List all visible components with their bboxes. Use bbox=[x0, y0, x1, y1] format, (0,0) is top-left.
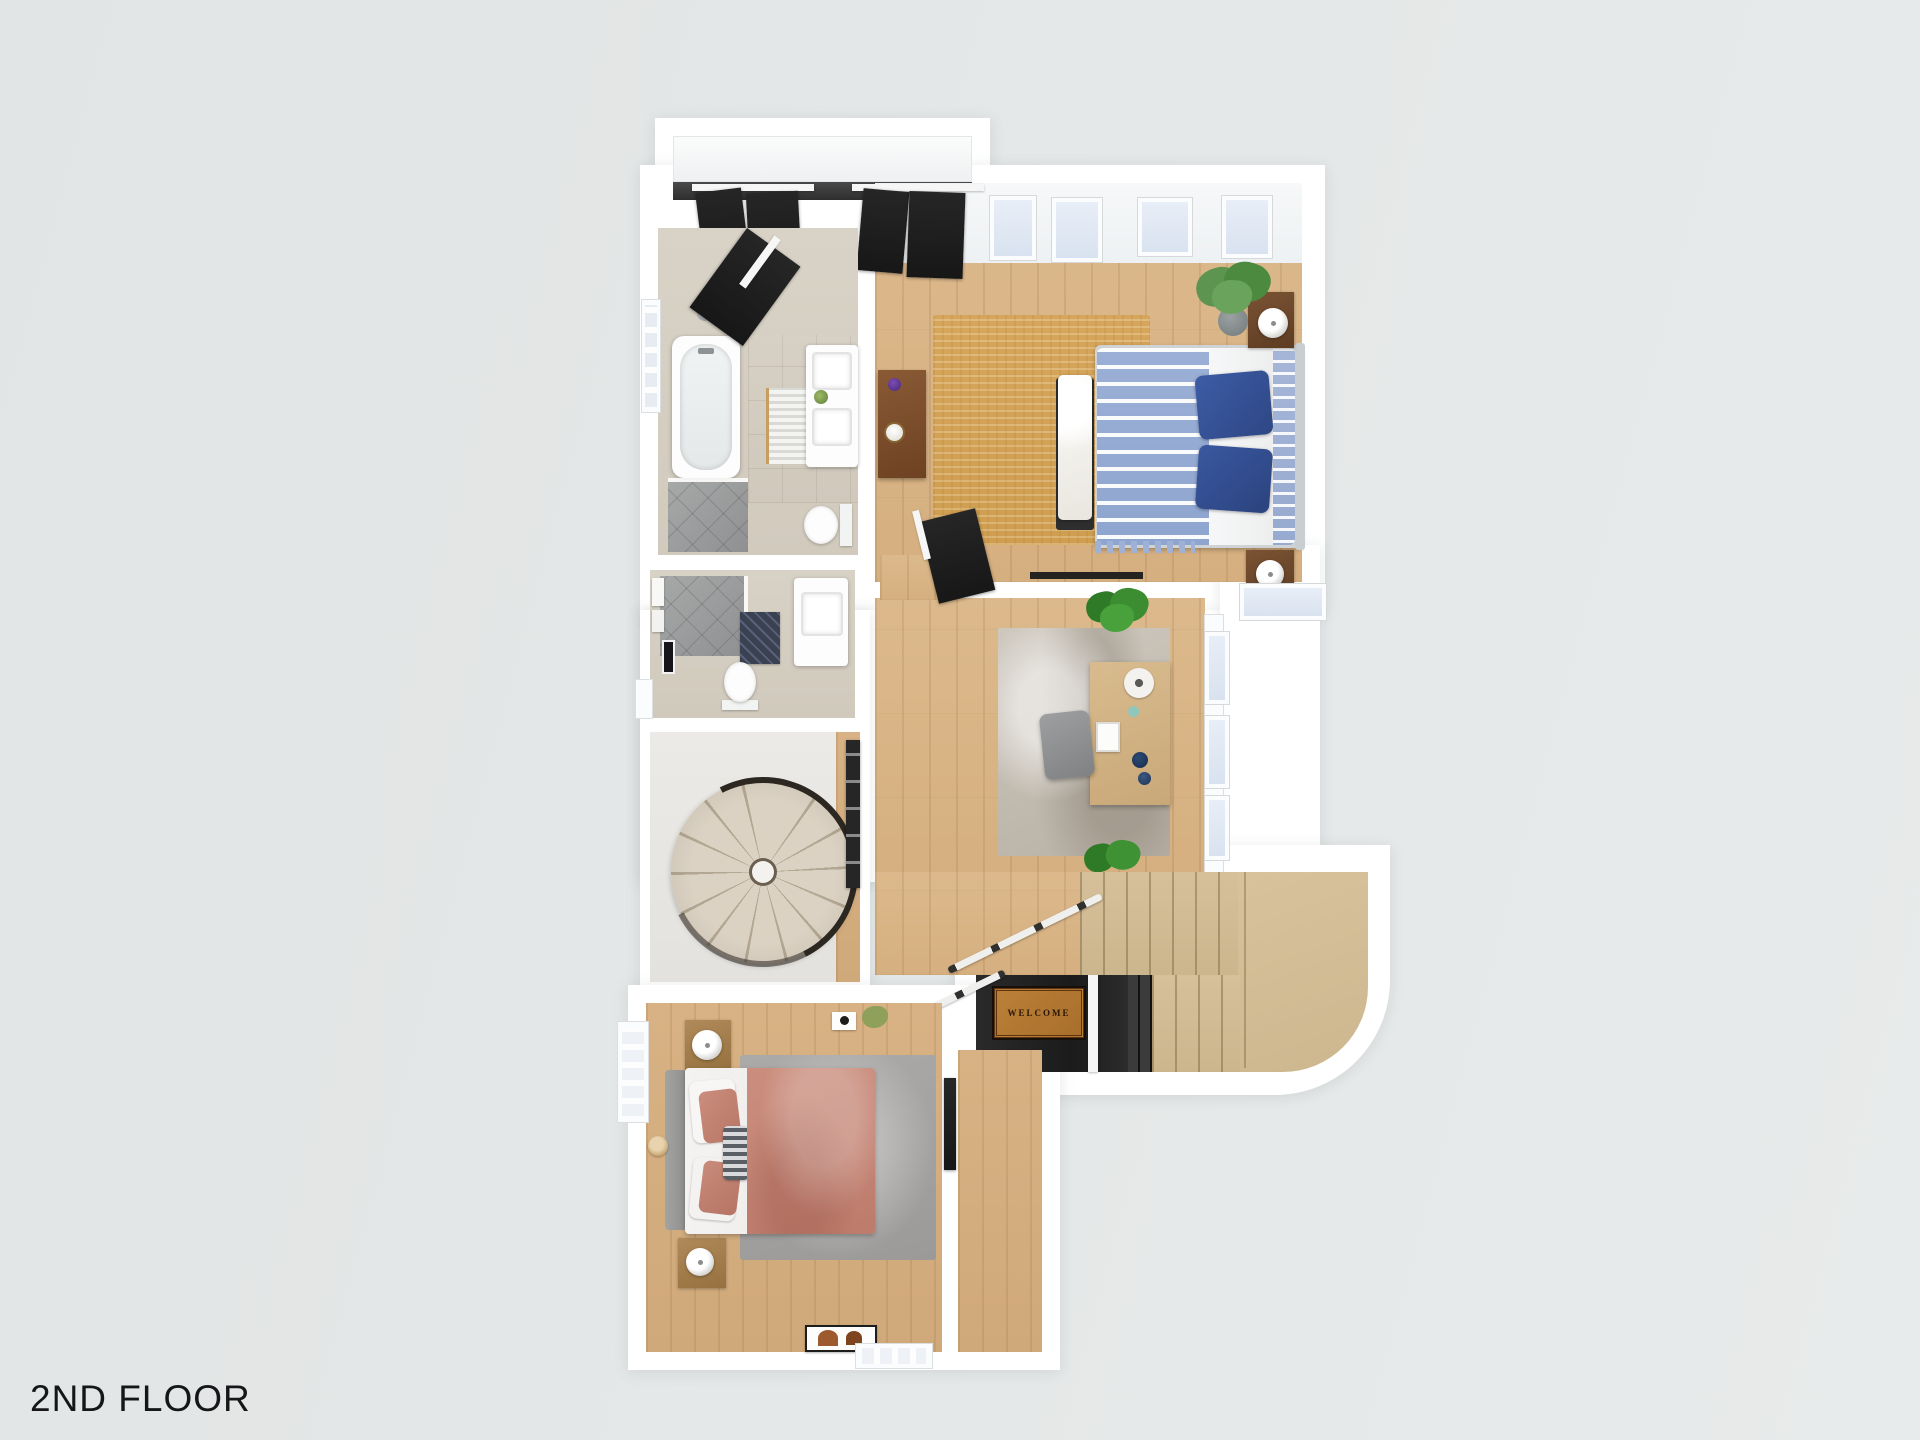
skylight-icon bbox=[1222, 196, 1272, 258]
staircase-lower-flight bbox=[1152, 975, 1240, 1072]
closet-bump-panel bbox=[673, 136, 972, 182]
bath-mat-dark bbox=[740, 612, 780, 664]
welcome-mat-text: WELCOME bbox=[1007, 1008, 1070, 1018]
desk-vase-navy bbox=[1132, 752, 1148, 768]
table-lamp-icon bbox=[686, 1248, 714, 1276]
window-icon bbox=[1240, 584, 1326, 620]
welcome-mat: WELCOME bbox=[994, 988, 1084, 1038]
potted-plant-icon bbox=[862, 1006, 892, 1032]
round-basket-icon bbox=[648, 1136, 668, 1156]
desk-art-swirl bbox=[840, 1016, 849, 1025]
artwork-detail bbox=[846, 1331, 862, 1345]
office-chair-icon bbox=[1039, 710, 1096, 781]
toilet-icon bbox=[724, 662, 756, 702]
stair-divider-wall bbox=[1088, 975, 1098, 1072]
bed1-pillow-navy bbox=[1195, 444, 1273, 513]
desk-cup bbox=[1128, 706, 1139, 717]
stair-rail-icon bbox=[846, 740, 860, 888]
bed2-headboard bbox=[665, 1070, 687, 1230]
desk-fan-icon bbox=[1124, 668, 1154, 698]
dresser-icon bbox=[878, 370, 926, 478]
bed2-duvet bbox=[747, 1068, 875, 1234]
artwork-detail bbox=[818, 1330, 838, 1346]
floor-title: 2ND FLOOR bbox=[30, 1378, 251, 1420]
plant-leaves bbox=[1211, 278, 1254, 315]
door-icon bbox=[944, 1078, 956, 1170]
bed2-accent-pillow bbox=[723, 1126, 749, 1180]
bathtub-inner bbox=[680, 344, 732, 470]
spiral-stair-post bbox=[752, 861, 774, 883]
double-bed-blue bbox=[1095, 345, 1302, 548]
potted-plant-icon bbox=[1086, 588, 1150, 640]
potted-plant-icon bbox=[1190, 268, 1270, 338]
window-mullions bbox=[645, 305, 657, 407]
skylight-icon bbox=[1052, 198, 1102, 262]
shower-glass bbox=[668, 478, 748, 482]
vase-flowers bbox=[886, 424, 903, 441]
shower-icon bbox=[668, 482, 748, 552]
window-icon bbox=[636, 680, 652, 718]
vase-purple bbox=[888, 378, 901, 391]
closet-door-icon bbox=[857, 188, 910, 274]
vanity-flowers bbox=[814, 390, 828, 404]
plant-leaves bbox=[862, 1006, 888, 1028]
media-ledge bbox=[1030, 572, 1143, 579]
skylight-icon bbox=[990, 196, 1036, 260]
sink-icon bbox=[812, 352, 852, 390]
towel-icon bbox=[652, 578, 664, 606]
window-mullions bbox=[862, 1348, 926, 1364]
desk-vase-navy bbox=[1138, 772, 1151, 785]
bed1-headboard bbox=[1295, 343, 1305, 550]
toilet-icon bbox=[804, 506, 838, 544]
staircase-landing-line bbox=[1244, 872, 1246, 1068]
closet-door-icon bbox=[907, 191, 966, 279]
sink-icon bbox=[801, 592, 843, 636]
stairwell-step-shadow bbox=[1128, 975, 1152, 1072]
window-mullions bbox=[622, 1028, 644, 1116]
plant-leaves bbox=[1100, 604, 1134, 632]
artwork-icon bbox=[662, 640, 675, 674]
table-lamp-icon bbox=[692, 1030, 722, 1060]
bed1-pillow-navy bbox=[1194, 370, 1273, 440]
staircase-upper-flight bbox=[1080, 872, 1240, 975]
bench-cushion bbox=[1058, 375, 1092, 520]
window-icon bbox=[1205, 716, 1229, 788]
bed1-striped-edge bbox=[1273, 348, 1295, 545]
bed1-duvet bbox=[1097, 348, 1209, 545]
skylight-icon bbox=[1138, 198, 1192, 256]
bed1-fringe bbox=[1095, 541, 1195, 553]
sink-icon bbox=[812, 408, 852, 446]
toilet-tank bbox=[840, 504, 852, 546]
bedroom2-hallway-floor bbox=[958, 1050, 1042, 1352]
desk-book bbox=[1096, 722, 1120, 752]
floor-plan-canvas: WELCOME 2ND FLOOR bbox=[0, 0, 1920, 1440]
double-bed-salmon bbox=[665, 1068, 875, 1234]
bathtub-faucet bbox=[698, 348, 714, 354]
window-icon bbox=[1205, 632, 1229, 704]
towel-icon bbox=[652, 610, 664, 632]
window-icon bbox=[1205, 796, 1229, 860]
